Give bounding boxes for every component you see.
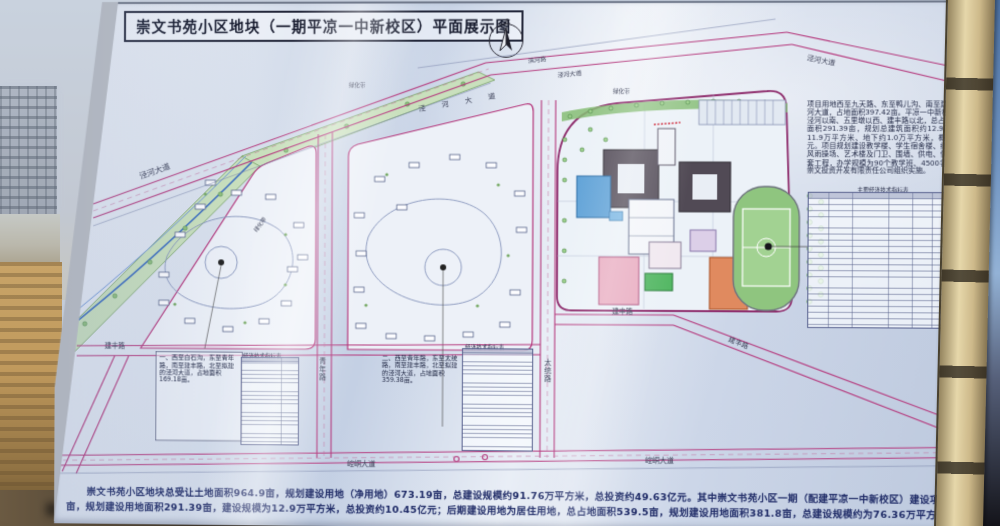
campus-parking [699, 100, 786, 124]
greenbelt-label-1: 绿化带 [349, 80, 366, 88]
school-campus [557, 91, 827, 312]
road-label-kongtong-1: 崆峒大道 [347, 458, 375, 469]
greenbelt-label-3: 绿化带 [613, 86, 630, 94]
dirt-ground [0, 262, 62, 526]
campus-tower [658, 129, 676, 165]
parcel-1-indicator-table [240, 357, 299, 446]
parcel-1-note: 一、西至白石沟，东至青年路，南至建丰路，北至拟建的泾河大道，占地面积169.18… [155, 351, 242, 441]
billboard-photo: 崇文书苑小区地块（一期平凉一中新校区）平面展示图 北 [0, 0, 1000, 526]
summary-block: 崇文书苑小区地块总受让土地面积964.9亩，规划建设用地（净用地）673.19亩… [66, 485, 974, 524]
background-wall [0, 214, 60, 266]
parcel-2-indicator-table [462, 348, 534, 451]
road-label-jianfeng-w: 建丰路 [105, 340, 125, 350]
site-plan-billboard: 崇文书苑小区地块（一期平凉一中新校区）平面展示图 北 [54, 0, 977, 526]
canteen [649, 242, 681, 268]
road-label-jianfeng-mid: 建丰路 [612, 306, 633, 316]
pool [577, 176, 611, 218]
road-label-taitong: 太统路 [541, 359, 552, 384]
arts-building [690, 230, 716, 251]
dorm-building-a [599, 257, 639, 305]
green-court [645, 273, 673, 290]
road-label-kongtong-2: 崆峒大道 [645, 455, 674, 466]
road-label-qingnian: 青年路 [316, 357, 326, 382]
parcel-2-note: 二、西至青年路，东至太统路，南至建丰路，北至拟建的泾河大道，占地面积359.38… [382, 355, 460, 399]
background-building [0, 86, 57, 214]
